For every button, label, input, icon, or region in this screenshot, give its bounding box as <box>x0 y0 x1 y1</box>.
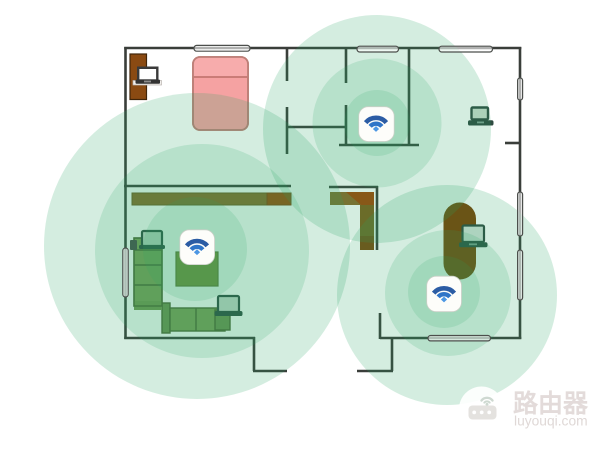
svg-text:luyouqi.com: luyouqi.com <box>514 414 588 429</box>
